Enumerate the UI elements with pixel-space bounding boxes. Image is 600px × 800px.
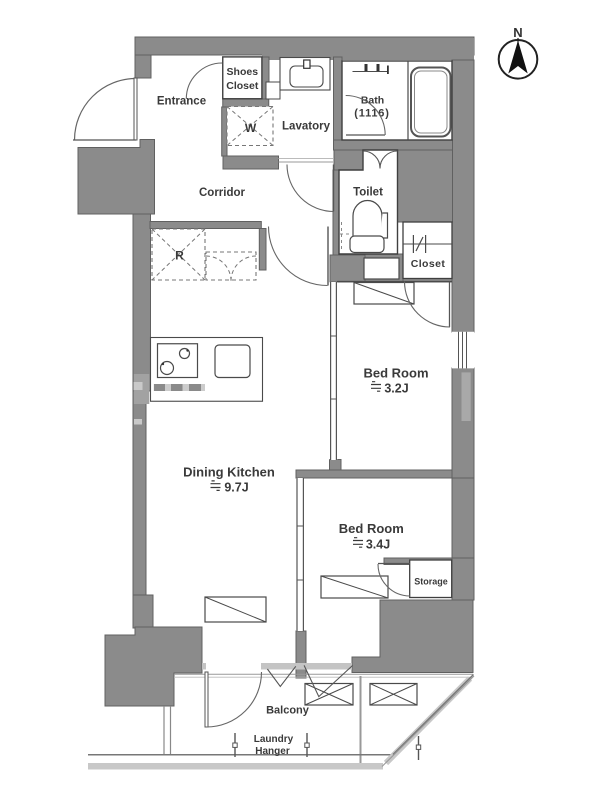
svg-text:Balcony: Balcony [266, 705, 310, 717]
svg-text:3.4J: 3.4J [366, 537, 390, 551]
svg-text:9.7J: 9.7J [224, 481, 248, 495]
svg-text:Bed Room: Bed Room [364, 366, 429, 381]
svg-text:Closet: Closet [226, 80, 259, 92]
svg-text:Corridor: Corridor [199, 187, 246, 199]
svg-text:W: W [245, 121, 257, 135]
svg-text:Storage: Storage [414, 577, 448, 587]
svg-text:3.2J: 3.2J [384, 381, 408, 395]
svg-text:Laundry: Laundry [254, 734, 294, 745]
svg-text:Closet: Closet [411, 258, 446, 270]
svg-text:Toilet: Toilet [353, 187, 383, 199]
svg-text:(1116): (1116) [354, 108, 389, 120]
svg-text:Bed Room: Bed Room [339, 521, 404, 536]
svg-text:Shoes: Shoes [227, 66, 259, 78]
svg-text:Entrance: Entrance [157, 96, 206, 108]
svg-text:R: R [175, 249, 184, 263]
svg-text:Dining Kitchen: Dining Kitchen [183, 465, 275, 480]
svg-text:Lavatory: Lavatory [282, 121, 331, 133]
svg-text:N: N [513, 25, 522, 40]
svg-text:Hanger: Hanger [255, 746, 290, 757]
